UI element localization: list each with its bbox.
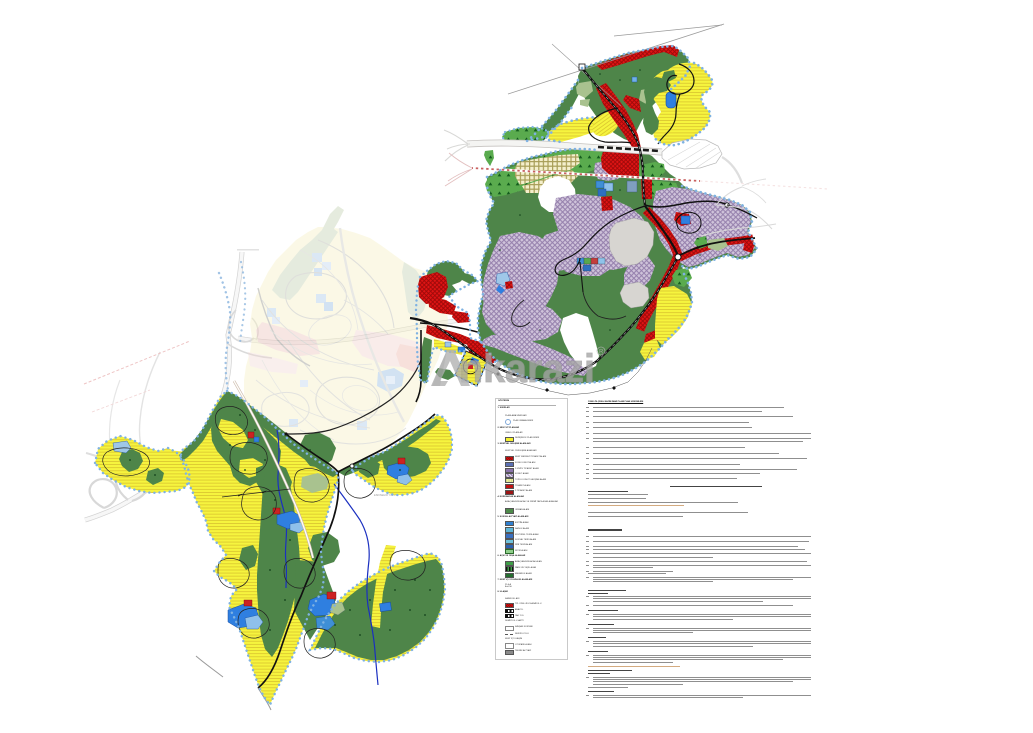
svg-text:R: R (599, 350, 604, 356)
svg-text:nkarazi: nkarazi (459, 347, 595, 391)
